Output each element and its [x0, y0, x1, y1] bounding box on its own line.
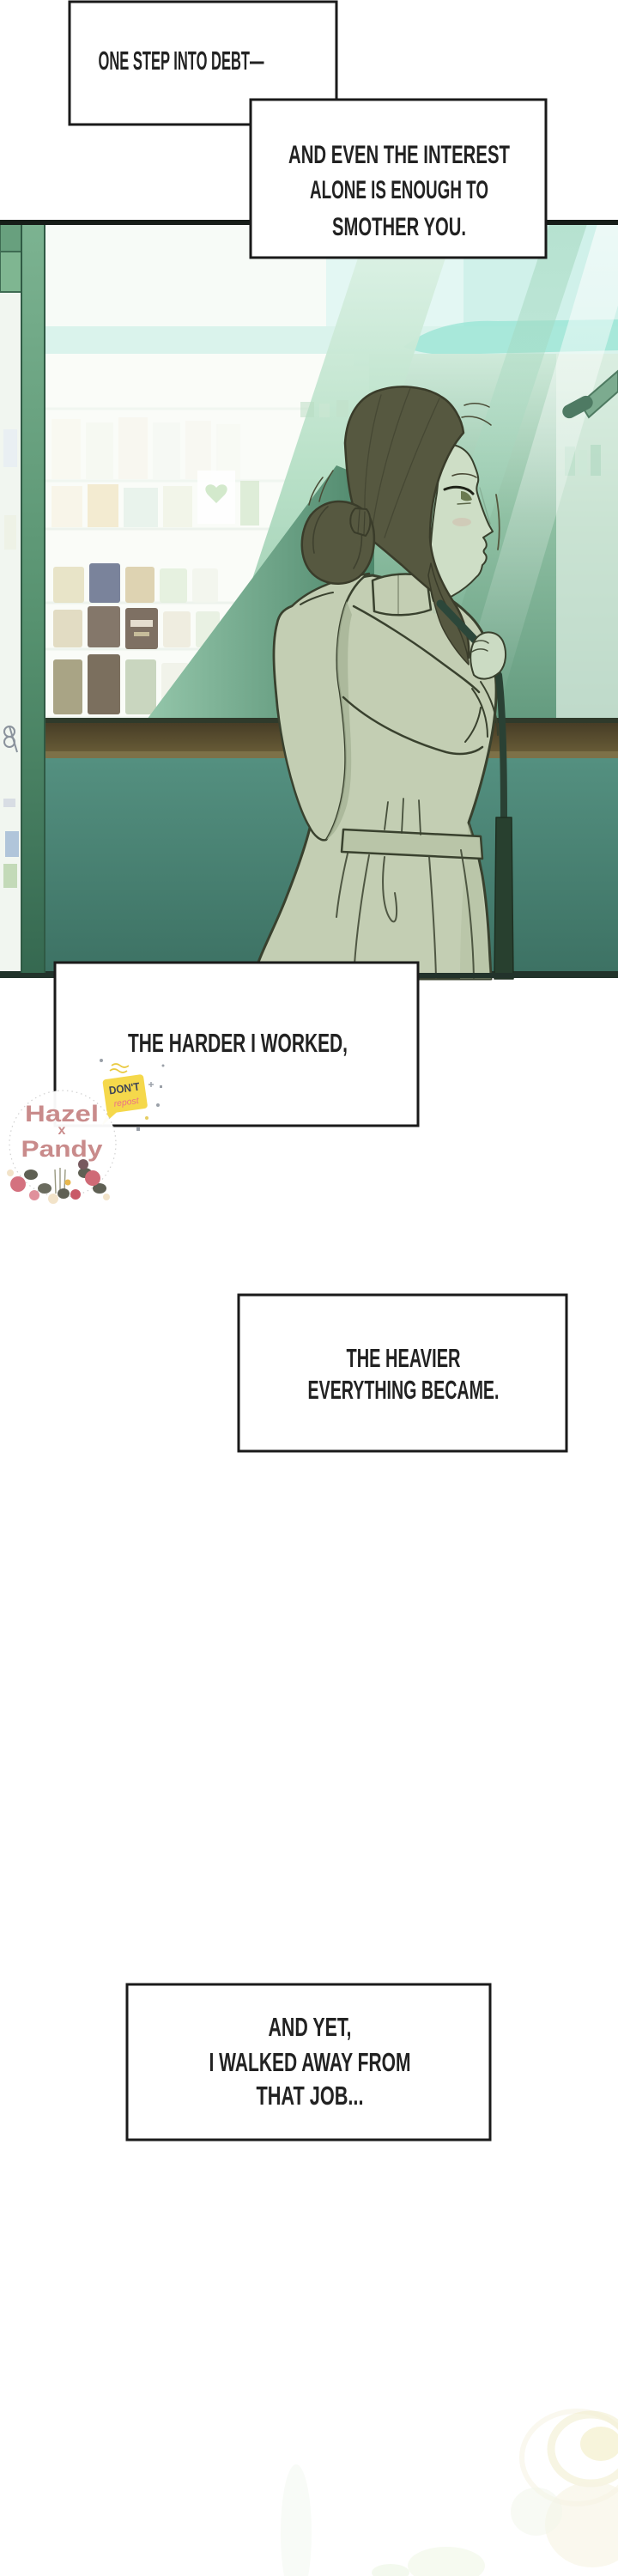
svg-text:THE HARDER I WORKED,: THE HARDER I WORKED, — [128, 1028, 348, 1058]
svg-text:SMOTHER YOU.: SMOTHER YOU. — [332, 213, 466, 241]
svg-text:ALONE IS ENOUGH TO: ALONE IS ENOUGH TO — [310, 176, 488, 204]
svg-text:I WALKED AWAY FROM: I WALKED AWAY FROM — [209, 2047, 411, 2077]
svg-text:THAT JOB...: THAT JOB... — [257, 2081, 364, 2111]
svg-text:AND YET,: AND YET, — [269, 2012, 352, 2042]
svg-text:THE HEAVIER: THE HEAVIER — [347, 1343, 461, 1373]
svg-text:ONE STEP INTO DEBT—: ONE STEP INTO DEBT— — [99, 46, 264, 76]
svg-text:Pandy: Pandy — [21, 1136, 103, 1162]
svg-text:AND EVEN THE INTEREST: AND EVEN THE INTEREST — [288, 141, 510, 169]
svg-text:EVERYTHING BECAME.: EVERYTHING BECAME. — [308, 1375, 500, 1405]
